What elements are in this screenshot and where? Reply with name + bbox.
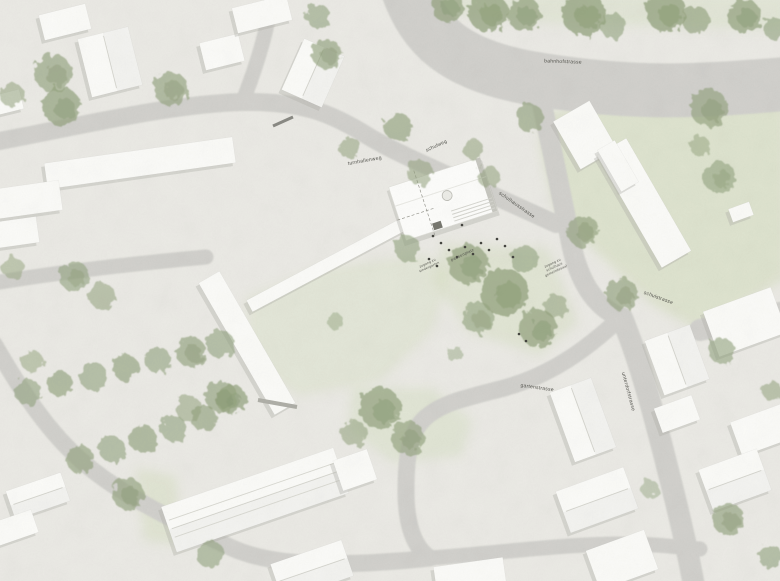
site-plan: bahnhofstrasse turnhallenweg schulweg sc… <box>0 0 780 581</box>
site-plan-drawing: bahnhofstrasse turnhallenweg schulweg sc… <box>0 0 780 581</box>
paper-noise-coarse <box>0 0 780 581</box>
